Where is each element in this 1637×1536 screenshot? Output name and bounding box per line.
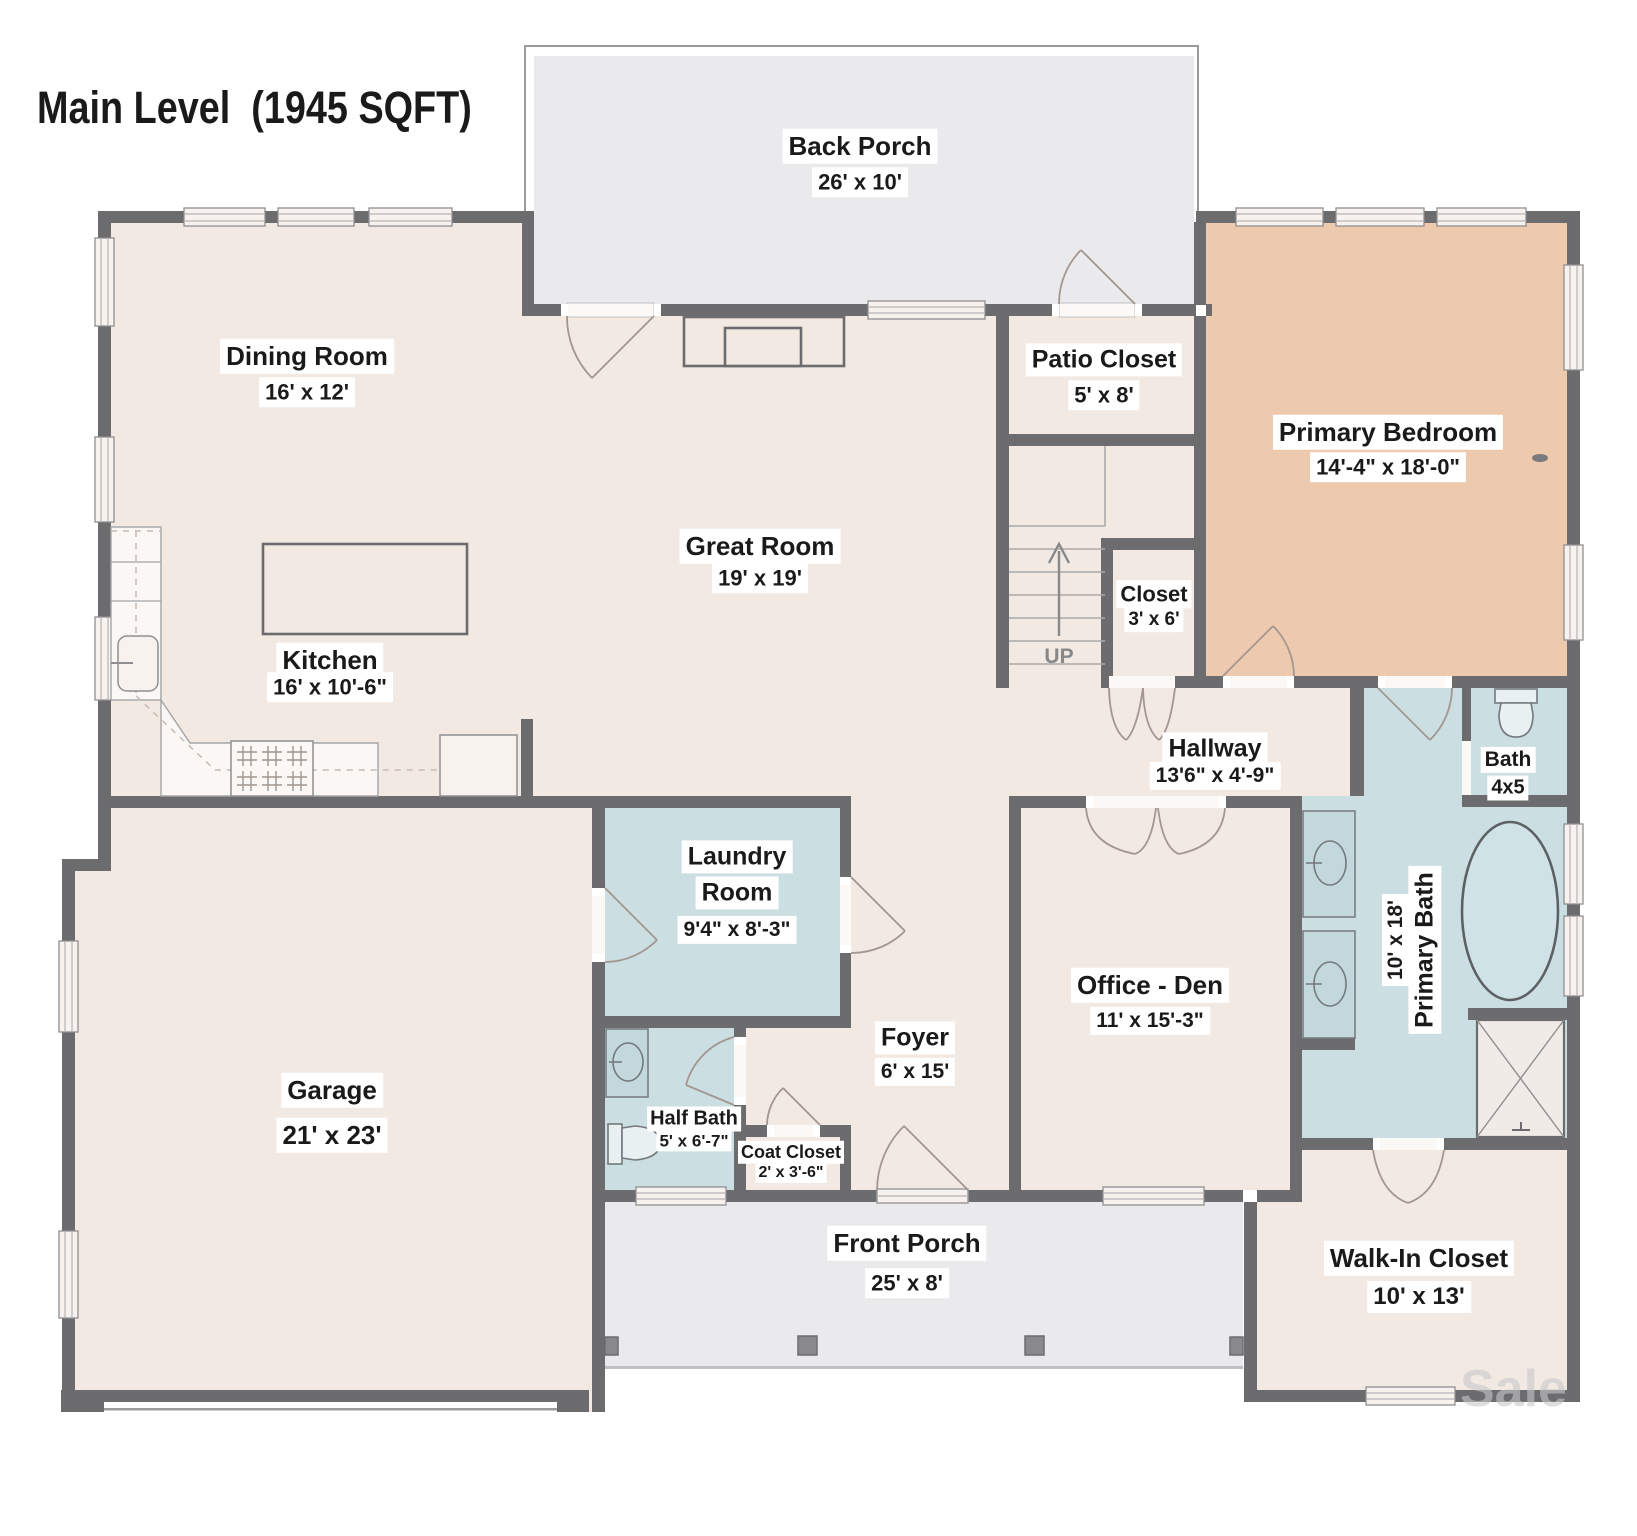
svg-text:Sale: Sale (1460, 1360, 1567, 1418)
